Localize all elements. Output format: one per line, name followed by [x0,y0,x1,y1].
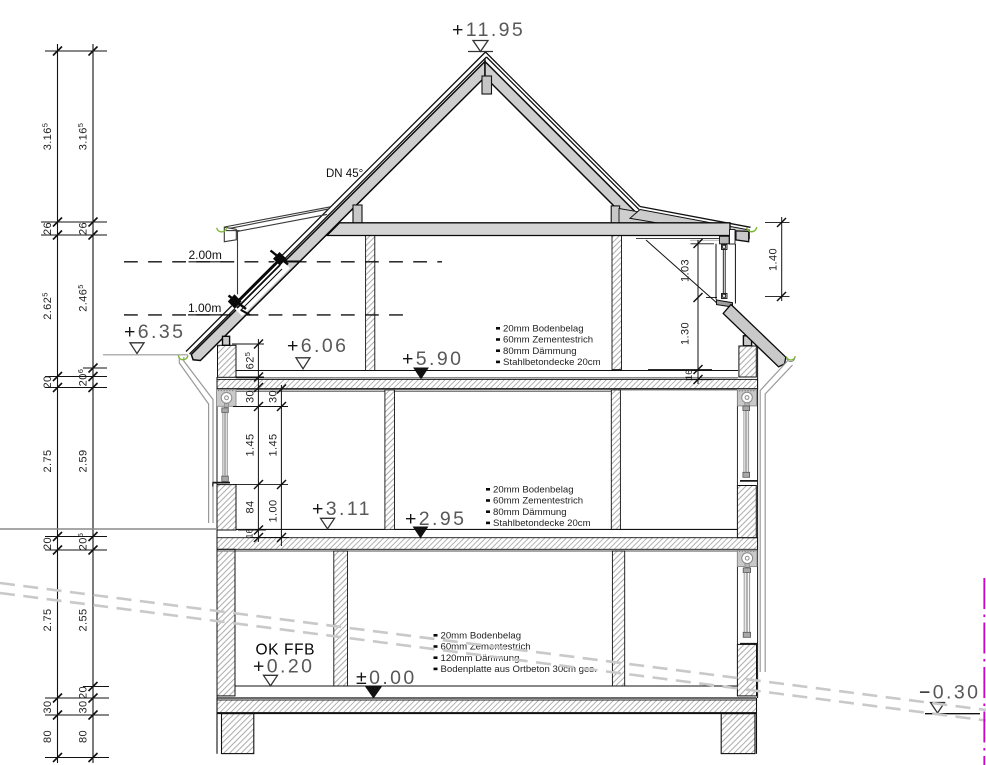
svg-text:+0.20: +0.20 [253,656,314,678]
svg-text:16: 16 [684,370,694,380]
svg-text:30: 30 [78,700,90,713]
svg-text:2.59: 2.59 [78,449,90,472]
svg-text:+5.90: +5.90 [402,348,463,370]
svg-text:2.75: 2.75 [42,449,54,472]
svg-text:2.55: 2.55 [78,608,90,631]
svg-text:+11.95: +11.95 [452,19,525,41]
svg-text:2.75: 2.75 [42,608,54,631]
svg-text:30: 30 [42,700,54,713]
svg-text:20: 20 [42,375,54,388]
svg-text:1.45: 1.45 [245,433,257,456]
svg-text:84: 84 [245,500,257,513]
svg-text:1.00: 1.00 [268,499,280,522]
svg-text:+6.06: +6.06 [287,335,348,357]
svg-text:+6.35: +6.35 [124,321,185,343]
svg-text:20: 20 [78,686,90,699]
svg-text:1.30: 1.30 [680,322,692,345]
svg-text:2.00m: 2.00m [189,248,222,262]
svg-text:30: 30 [268,390,280,403]
svg-text:1.03: 1.03 [680,259,692,282]
svg-text:26: 26 [42,222,54,235]
svg-text:80: 80 [78,730,90,743]
svg-text:1.40: 1.40 [768,248,780,271]
svg-text:+3.11: +3.11 [312,498,372,520]
svg-text:DN 45°: DN 45° [326,168,363,180]
svg-text:20: 20 [42,537,54,550]
svg-text:26: 26 [78,222,90,235]
svg-text:1.00m: 1.00m [188,301,221,315]
svg-text:−0.30: −0.30 [919,682,980,704]
svg-text:1.45: 1.45 [268,433,280,456]
svg-text:±0.00: ±0.00 [356,667,417,689]
svg-text:30: 30 [245,390,257,403]
svg-text:80: 80 [42,730,54,743]
